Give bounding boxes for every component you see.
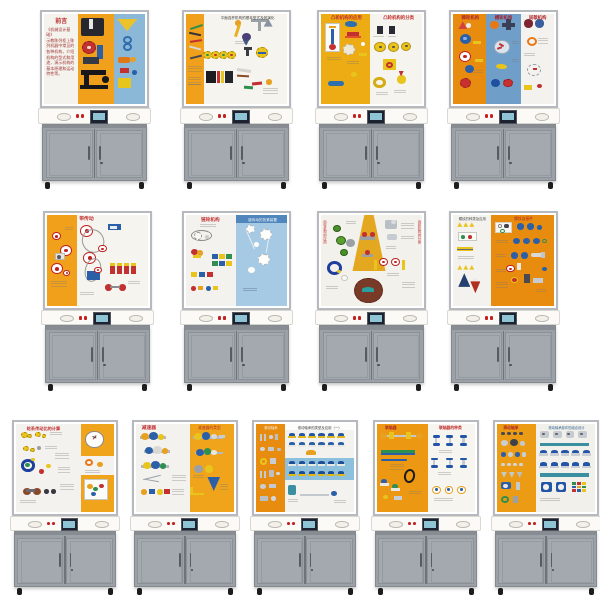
model-item	[221, 71, 224, 83]
screen-glow	[502, 113, 514, 120]
power-indicator-button	[490, 316, 493, 320]
target-hub	[460, 488, 463, 490]
model-item	[329, 26, 336, 29]
model-item	[298, 442, 306, 447]
model-item	[327, 461, 335, 466]
model-item	[337, 471, 345, 476]
panel-title: 螺纹连接件	[510, 217, 538, 222]
model-item	[536, 289, 546, 294]
bearing-base	[561, 453, 570, 456]
panel-title: 轮系传动比的计算	[22, 426, 65, 431]
model-item	[120, 68, 129, 73]
door-handle	[102, 347, 104, 361]
control-console	[371, 516, 481, 531]
caster-wheel	[48, 384, 53, 391]
bearing-base	[571, 453, 580, 456]
display-board: 滚动轴承滚动轴承的类型及应用（一）	[252, 420, 358, 516]
model-item	[572, 482, 576, 485]
model-item	[118, 78, 131, 88]
model-item	[327, 433, 335, 438]
model-item	[473, 70, 483, 75]
speaker-grille-icon	[199, 315, 213, 323]
cabinet-base	[42, 124, 147, 181]
model-item	[345, 36, 361, 39]
control-screen	[232, 110, 250, 123]
model-item	[110, 286, 120, 288]
display-area: 轮系传动比的计算	[16, 424, 114, 512]
door-gap	[236, 331, 237, 380]
door-gap	[236, 129, 237, 178]
base-top-edge	[452, 326, 555, 329]
panel-title: 凸轮机构的分类	[382, 16, 416, 22]
door-handle	[540, 553, 542, 567]
model-item	[191, 272, 197, 277]
model-item	[383, 495, 388, 499]
model-item	[58, 467, 70, 472]
model-item	[193, 255, 201, 258]
bearing-base	[582, 466, 591, 469]
display-board: 联轴器联轴器的种类	[373, 420, 479, 516]
product-catalog-photo: 前言《机械设计基础》 示教陈列柜上陈 列机器中常见的 各种机构，介绍 机构的型式…	[0, 0, 600, 600]
door-handle	[91, 347, 93, 361]
cabinet-door-left	[188, 130, 235, 178]
bearing-base	[561, 466, 570, 469]
model-item	[516, 482, 520, 490]
model-item	[94, 267, 101, 273]
power-indicator-button	[353, 316, 356, 320]
model-item	[582, 482, 586, 485]
cabinet-door-left	[323, 130, 370, 178]
control-screen	[181, 518, 198, 531]
door-panel-line	[377, 335, 419, 378]
model-item	[394, 496, 402, 500]
speaker-grille-icon	[403, 315, 417, 323]
model-item	[300, 494, 329, 497]
model-item	[386, 62, 393, 68]
model-item	[20, 500, 36, 504]
panel-title: 滑动轴承	[500, 426, 521, 431]
model-item	[260, 434, 262, 441]
caster-wheel	[589, 588, 594, 595]
control-screen	[90, 110, 108, 123]
door-panel-line	[502, 541, 543, 583]
board-panel	[521, 14, 554, 104]
model-item	[269, 484, 276, 488]
model-item	[582, 450, 591, 456]
power-indicator-button	[223, 114, 226, 118]
cabinet-door-right	[373, 130, 420, 178]
model-item	[213, 286, 218, 290]
cabinet-base	[134, 531, 236, 587]
model-item	[217, 71, 220, 83]
model-item	[258, 22, 261, 31]
speaker-grille-icon	[129, 315, 143, 323]
cabinet-door-left	[323, 332, 370, 380]
model-item	[268, 447, 274, 451]
model-item	[51, 489, 56, 493]
model-item	[271, 496, 276, 500]
model-item	[515, 452, 520, 456]
coupling-disc	[446, 443, 453, 446]
model-item	[538, 38, 548, 43]
model-item	[431, 458, 438, 469]
target-hub	[55, 235, 58, 238]
coupling-disc	[460, 465, 467, 468]
bearing-base	[318, 464, 326, 466]
model-item	[337, 461, 345, 466]
model-item	[55, 453, 69, 460]
caster-wheel	[257, 588, 262, 595]
base-top-edge	[185, 326, 288, 329]
display-cabinet: 螺纹的种类及应用螺纹连接件	[447, 211, 560, 391]
panel-title: 螺纹的种类及应用	[455, 217, 489, 221]
power-indicator-button	[292, 522, 295, 526]
bearing-base	[337, 436, 345, 438]
display-cabinet: 联轴器联轴器的种类	[371, 420, 481, 595]
caster-wheel	[322, 384, 327, 391]
speaker-grille-icon	[57, 113, 71, 121]
control-screen	[93, 312, 111, 325]
model-item	[359, 53, 367, 57]
display-cabinet: 滚动轴承滚动轴承的类型及应用（一）	[250, 420, 360, 595]
display-board: 轮系传动比的计算	[12, 420, 118, 516]
model-item	[496, 282, 508, 287]
model-item	[27, 434, 32, 438]
cabinet-door-left	[17, 538, 63, 584]
door-handle	[497, 347, 499, 361]
bearing-base	[318, 474, 326, 476]
display-cabinet: 凸轮机构的应用凸轮机构的分类	[315, 10, 428, 189]
display-area: 滚动轴承滚动轴承的类型及应用（一）	[256, 424, 354, 512]
door-handle	[508, 146, 510, 160]
door-keyhole	[509, 364, 511, 366]
model-item	[237, 74, 249, 77]
model-item	[511, 252, 518, 258]
door-gap	[503, 331, 504, 380]
model-item	[522, 452, 527, 456]
door-panel-line	[509, 335, 551, 378]
model-item	[110, 266, 115, 274]
model-item	[473, 41, 481, 44]
model-item	[582, 486, 586, 489]
target-hub	[64, 249, 68, 253]
model-item	[537, 225, 542, 230]
speaker-grille-icon	[334, 315, 348, 323]
control-screen	[232, 312, 250, 325]
panel-title: 滚动轴承的类型及应用（一）	[288, 426, 350, 430]
model-item	[198, 286, 203, 290]
cabinet-door-left	[455, 130, 502, 178]
caster-wheel	[378, 588, 383, 595]
model-item	[389, 26, 395, 34]
model-item	[391, 488, 400, 491]
panel-title: 链轮机构	[198, 218, 222, 224]
model-item	[376, 92, 388, 96]
door-handle	[420, 553, 422, 567]
door-handle	[88, 146, 90, 160]
caster-wheel	[498, 588, 503, 595]
door-panel-line	[431, 541, 472, 583]
model-item	[571, 462, 580, 468]
model-item	[362, 287, 374, 292]
display-cabinet: 轮系传动比的计算	[10, 420, 120, 595]
bolt-knob-model	[517, 223, 524, 229]
model-item	[377, 26, 383, 34]
model-item	[219, 435, 225, 439]
bearing-base	[298, 464, 306, 466]
model-item	[524, 53, 535, 57]
model-item	[392, 46, 395, 49]
model-item	[496, 269, 506, 274]
model-item	[577, 489, 581, 492]
model-item	[527, 37, 537, 46]
door-gap	[184, 536, 185, 584]
model-item	[527, 223, 534, 229]
model-item	[517, 263, 521, 270]
panel-title: 齿轮机构的分类	[417, 220, 421, 244]
model-item	[501, 440, 508, 446]
model-item	[402, 260, 405, 270]
model-item	[191, 286, 196, 291]
control-console	[130, 516, 240, 531]
display-board: 齿轮机构的应用齿轮机构的分类	[317, 211, 425, 310]
caster-wheel	[281, 384, 286, 391]
model-item	[387, 273, 399, 278]
model-item	[397, 75, 406, 83]
door-panel-line	[326, 133, 368, 176]
bearing-base	[327, 464, 335, 466]
model-item	[327, 57, 341, 62]
door-panel-line	[458, 133, 500, 176]
model-item	[145, 447, 153, 454]
door-panel-line	[458, 335, 500, 378]
model-item	[577, 486, 581, 489]
coupling-disc	[460, 443, 467, 446]
door-handle	[376, 146, 378, 160]
power-indicator-button	[413, 522, 416, 526]
model-item	[582, 462, 591, 468]
caster-wheel	[137, 588, 142, 595]
door-panel-line	[377, 133, 419, 176]
model-item	[550, 462, 559, 468]
model-item	[57, 255, 61, 259]
model-item	[288, 442, 296, 447]
sprocket-model	[246, 225, 255, 233]
model-item	[318, 461, 326, 466]
model-item	[373, 36, 383, 39]
model-item	[164, 489, 170, 493]
display-cabinet: 滑动轴承滚动轴承部件的组合设计	[491, 420, 600, 595]
caster-wheel	[416, 384, 421, 391]
door-panel-line	[103, 335, 145, 378]
model-item	[556, 482, 567, 492]
model-item	[235, 41, 247, 46]
model-item	[200, 224, 216, 229]
model-item	[326, 286, 338, 291]
panel-title: 减速器	[141, 426, 157, 432]
model-item	[524, 85, 532, 90]
model-item	[380, 433, 387, 439]
caster-wheel	[142, 384, 147, 391]
speaker-grille-icon	[389, 521, 403, 528]
door-handle	[99, 146, 101, 160]
model-item	[288, 471, 296, 476]
model-item	[212, 254, 218, 259]
caster-wheel	[17, 588, 22, 595]
control-screen	[542, 518, 559, 531]
door-gap	[371, 331, 372, 380]
door-panel-line	[242, 133, 284, 176]
door-keyhole	[191, 569, 193, 571]
base-top-edge	[46, 326, 149, 329]
model-item	[387, 234, 397, 240]
panel-title: 齿轮机构的应用	[322, 220, 326, 244]
screen-glow	[235, 315, 247, 322]
speaker-grille-icon	[268, 113, 282, 121]
model-item	[25, 463, 30, 467]
caster-wheel	[187, 182, 192, 189]
display-cabinet: 齿轮机构的应用齿轮机构的分类	[315, 211, 428, 391]
target-hub	[97, 269, 99, 271]
door-panel-line	[242, 335, 284, 378]
target-hub	[447, 488, 450, 490]
model-item	[513, 238, 520, 244]
bearing-base	[298, 436, 306, 438]
screen-glow	[63, 521, 74, 528]
model-item	[254, 242, 259, 247]
model-item	[132, 70, 137, 75]
model-item	[153, 446, 162, 454]
door-handle	[241, 146, 243, 160]
target-hub	[509, 268, 512, 270]
caster-wheel	[416, 182, 421, 189]
door-gap	[97, 331, 98, 380]
panel-title: 凸轮机构的应用	[329, 16, 363, 22]
cabinet-base	[184, 325, 289, 383]
cabinet-base	[254, 531, 356, 587]
speaker-grille-icon	[576, 521, 590, 528]
cabinet-door-right	[238, 130, 285, 178]
model-item	[501, 452, 506, 456]
cabinet-door-right	[505, 332, 552, 380]
model-item	[496, 254, 506, 259]
cabinet-base	[375, 531, 477, 587]
speaker-grille-icon	[535, 113, 549, 121]
door-panel-line	[52, 335, 94, 378]
model-item	[537, 84, 542, 89]
display-area: 前言《机械设计基础》 示教陈列柜上陈 列机器中常见的 各种机构，介绍 机构的型式…	[44, 14, 144, 104]
screen-glow	[235, 113, 247, 120]
model-item	[248, 267, 255, 273]
model-item	[496, 64, 507, 69]
cabinet-door-left	[257, 538, 303, 584]
model-item	[80, 292, 94, 297]
screen-glow	[502, 315, 514, 322]
control-screen	[422, 518, 439, 531]
display-area: 平面连杆机构的基本型式及其演化	[186, 14, 286, 104]
model-item	[475, 59, 483, 62]
cabinet-door-right	[238, 332, 285, 380]
door-gap	[371, 129, 372, 178]
power-indicator-button	[172, 522, 175, 526]
base-top-edge	[135, 532, 235, 535]
model-item	[524, 274, 530, 283]
speaker-grille-icon	[268, 521, 282, 528]
power-indicator-button	[218, 114, 221, 118]
model-item	[334, 500, 346, 504]
caster-wheel	[187, 384, 192, 391]
control-console	[38, 108, 151, 123]
model-item	[318, 442, 326, 447]
cabinet-base	[451, 124, 556, 181]
speaker-grille-icon	[199, 113, 213, 121]
speaker-grille-icon	[535, 315, 549, 323]
model-item	[277, 448, 281, 452]
speaker-grille-icon	[403, 113, 417, 121]
model-item	[503, 79, 512, 87]
screen-glow	[93, 113, 105, 120]
model-item	[374, 260, 377, 270]
model-item	[458, 256, 474, 261]
model-item	[124, 266, 129, 274]
bearing-base	[308, 464, 316, 466]
model-item	[85, 470, 101, 474]
door-handle	[299, 553, 301, 567]
model-item	[243, 288, 257, 293]
model-item	[269, 435, 273, 439]
speaker-grille-icon	[268, 315, 282, 323]
control-console	[315, 310, 428, 325]
model-item	[211, 450, 217, 455]
display-cabinet: 减速器减速器的类型	[130, 420, 240, 595]
caster-wheel	[548, 384, 553, 391]
model-item	[527, 64, 541, 77]
cabinet-base	[451, 325, 556, 383]
base-top-edge	[43, 125, 146, 128]
door-keyhole	[377, 364, 379, 366]
display-area: 减速器减速器的类型	[136, 424, 234, 512]
base-top-edge	[185, 125, 288, 128]
door-gap	[64, 536, 65, 584]
model-item	[194, 465, 203, 473]
door-gap	[425, 536, 426, 584]
power-indicator-button	[358, 316, 361, 320]
model-item	[446, 458, 453, 469]
display-board: 棘轮机构槽轮机构间歇机构	[449, 10, 557, 108]
model-item	[102, 76, 109, 82]
power-indicator-button	[81, 114, 84, 118]
model-item	[337, 442, 345, 447]
coupling-disc	[433, 443, 440, 446]
speaker-grille-icon	[148, 521, 162, 528]
caster-wheel	[548, 182, 553, 189]
screen-glow	[370, 315, 382, 322]
bearing-base	[571, 466, 580, 469]
model-item	[511, 277, 518, 283]
display-board: 滑动轴承滚动轴承部件的组合设计	[493, 420, 599, 516]
bearing-base	[308, 474, 316, 476]
model-item	[434, 498, 454, 502]
control-console	[250, 516, 360, 531]
bearing-base	[550, 453, 559, 456]
model-item	[446, 435, 453, 446]
caster-wheel	[454, 384, 459, 391]
power-indicator-button	[84, 316, 87, 320]
screen-glow	[544, 521, 555, 528]
model-item	[379, 46, 382, 49]
model-item	[327, 442, 335, 447]
model-item	[409, 491, 421, 496]
